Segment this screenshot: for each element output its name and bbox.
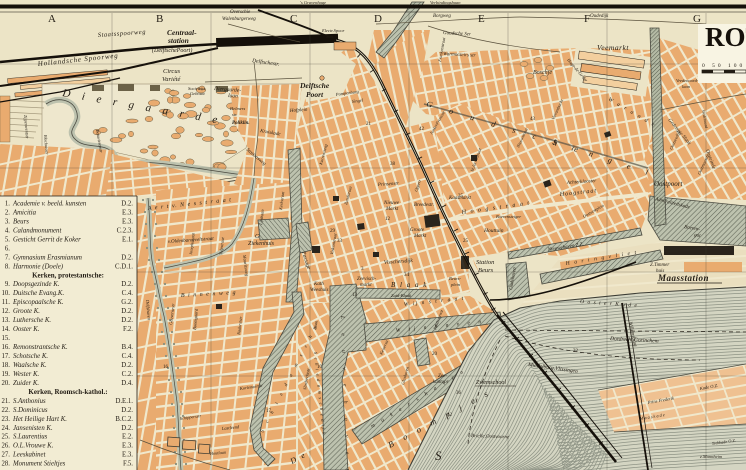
svg-text:E.2.: E.2. [122, 434, 133, 441]
svg-text:Zee-: Zee- [438, 374, 447, 379]
svg-text:0 50 100: 0 50 100 [702, 63, 745, 69]
svg-text:D.2.: D.2. [121, 317, 133, 324]
svg-text:Calandmonument: Calandmonument [13, 227, 62, 234]
svg-text:Borgweg: Borgweg [433, 14, 451, 19]
svg-text:E.1.: E.1. [122, 236, 133, 243]
svg-text:Gebouw: Gebouw [190, 91, 205, 96]
svg-text:29: 29 [330, 229, 336, 234]
svg-text:C.D.1.: C.D.1. [115, 263, 133, 270]
svg-text:kantoor: kantoor [433, 380, 449, 385]
svg-text:Beurs-: Beurs- [449, 276, 461, 281]
svg-text:E.3.: E.3. [122, 452, 133, 459]
svg-text:42: 42 [447, 413, 453, 418]
svg-text:D.2.: D.2. [121, 425, 133, 432]
svg-text:10.: 10. [2, 290, 11, 297]
svg-text:C.2.: C.2. [122, 371, 134, 378]
svg-text:Academie v. beeld. kunsten: Academie v. beeld. kunsten [12, 201, 87, 208]
svg-text:Houttuin: Houttuin [483, 228, 504, 234]
svg-text:B l a a k: B l a a k [391, 281, 428, 289]
svg-text:Circus: Circus [163, 68, 181, 75]
svg-text:Kerken, protestantsche:: Kerken, protestantsche: [32, 271, 104, 279]
svg-text:8.: 8. [5, 263, 10, 270]
svg-text:D.2.: D.2. [121, 201, 133, 208]
svg-text:Jansenisten K.: Jansenisten K. [13, 425, 53, 432]
svg-text:20: 20 [432, 352, 438, 357]
svg-text:18.: 18. [2, 362, 11, 369]
svg-text:Remonstrantsche K.: Remonstrantsche K. [12, 344, 68, 351]
svg-text:E.3.: E.3. [122, 443, 133, 450]
svg-text:17.: 17. [2, 353, 11, 360]
svg-text:Oudedijk: Oudedijk [590, 14, 609, 19]
svg-text:Leeskabinet: Leeskabinet [12, 452, 47, 459]
svg-text:S.Anthonius: S.Anthonius [13, 398, 46, 405]
svg-text:6.: 6. [5, 245, 10, 252]
svg-text:27.: 27. [2, 452, 11, 459]
svg-text:Markt: Markt [385, 207, 399, 212]
svg-text:D.2.: D.2. [121, 308, 133, 315]
svg-text:Helmers: Helmers [229, 106, 245, 111]
svg-text:12: 12 [385, 217, 391, 222]
svg-text:D: D [374, 13, 382, 25]
svg-text:38: 38 [390, 162, 396, 167]
svg-text:Duitsche Evang.K.: Duitsche Evang.K. [12, 290, 64, 297]
svg-text:Z.Timmer: Z.Timmer [650, 263, 669, 268]
svg-text:G: G [693, 13, 701, 25]
svg-text:Vredenoord-: Vredenoord- [676, 78, 699, 83]
svg-text:S.Dominicus: S.Dominicus [13, 407, 48, 414]
svg-text:17: 17 [266, 409, 272, 414]
svg-text:S.Laurentius: S.Laurentius [13, 434, 48, 441]
svg-text:(DelftschePoort): (DelftschePoort) [152, 47, 192, 54]
svg-text:16: 16 [163, 365, 169, 370]
svg-text:Doopsgezinde K.: Doopsgezinde K. [12, 281, 60, 288]
svg-text:12.: 12. [2, 308, 11, 315]
svg-text:Electr.Spoor: Electr.Spoor [321, 28, 345, 33]
svg-text:D.2.: D.2. [121, 407, 133, 414]
svg-text:34: 34 [404, 273, 410, 278]
svg-text:Zuider K.: Zuider K. [13, 380, 39, 387]
svg-text:5.: 5. [5, 236, 10, 243]
svg-text:G.2.: G.2. [121, 299, 133, 306]
svg-text:Maasstation: Maasstation [657, 273, 709, 283]
svg-text:20.: 20. [2, 380, 11, 387]
svg-text:Zwemschool: Zwemschool [476, 380, 506, 386]
svg-text:23.: 23. [2, 416, 11, 423]
svg-text:C.2.3.: C.2.3. [117, 227, 134, 234]
svg-text:A: A [48, 13, 56, 25]
svg-text:Breedestr.: Breedestr. [414, 203, 434, 208]
svg-text:Oostpoort: Oostpoort [654, 180, 683, 188]
svg-text:14.: 14. [2, 326, 11, 333]
svg-text:E: E [478, 13, 485, 25]
svg-text:Weeshuis: Weeshuis [310, 288, 328, 293]
svg-text:D.4.: D.4. [121, 380, 133, 387]
svg-text:ROT: ROT [705, 22, 746, 52]
svg-text:Poort: Poort [306, 90, 324, 99]
svg-text:36: 36 [456, 391, 462, 396]
svg-text:Beurs: Beurs [13, 218, 29, 225]
svg-text:42: 42 [419, 127, 425, 132]
svg-text:Boschje: Boschje [533, 70, 552, 76]
svg-text:C.4.: C.4. [122, 290, 134, 297]
svg-text:26.: 26. [2, 443, 11, 450]
svg-text:D.2.: D.2. [121, 281, 133, 288]
svg-text:Groote K.: Groote K. [13, 308, 40, 315]
svg-text:E.3.: E.3. [122, 218, 133, 225]
svg-text:F.2.: F.2. [123, 326, 133, 333]
svg-text:16.: 16. [2, 344, 11, 351]
svg-text:Episcopaalsche K.: Episcopaalsche K. [12, 299, 64, 306]
svg-text:station: station [167, 36, 189, 45]
svg-text:Overschie: Overschie [230, 10, 251, 15]
svg-text:markt: markt [360, 283, 372, 288]
svg-text:Veemarkt: Veemarkt [597, 43, 629, 52]
svg-text:33: 33 [337, 239, 343, 244]
svg-text:Stat.: Stat. [326, 34, 334, 39]
svg-text:D.E.1.: D.E.1. [115, 398, 133, 405]
svg-text:Waalsche K.: Waalsche K. [13, 362, 47, 369]
svg-text:Variété: Variété [162, 76, 182, 83]
svg-text:Amicitia: Amicitia [12, 210, 37, 217]
svg-text:21: 21 [366, 122, 372, 127]
svg-text:24.: 24. [2, 425, 11, 432]
svg-text:Kath: Kath [313, 282, 324, 287]
svg-text:laan: laan [682, 84, 691, 89]
svg-text:Luthersche K.: Luthersche K. [12, 317, 51, 324]
svg-text:Boerensteiger: Boerensteiger [496, 214, 521, 219]
svg-text:1.: 1. [5, 201, 10, 208]
svg-text:laan: laan [228, 93, 238, 100]
svg-text:13: 13 [352, 293, 358, 298]
svg-text:15.: 15. [2, 335, 11, 342]
svg-text:E.3.: E.3. [122, 210, 133, 217]
svg-text:13.: 13. [2, 317, 11, 324]
svg-text:Markt: Markt [413, 234, 427, 239]
svg-text:Monument Stieltjes: Monument Stieltjes [12, 461, 66, 468]
svg-text:7.: 7. [5, 254, 10, 261]
svg-text:Ziekenhuis: Ziekenhuis [248, 241, 275, 247]
svg-text:Schotsche K.: Schotsche K. [13, 353, 48, 360]
svg-text:O.L.Vrouwe K.: O.L.Vrouwe K. [13, 443, 54, 450]
svg-text:plein: plein [450, 282, 461, 287]
svg-text:C: C [290, 13, 297, 25]
svg-text:Het Heilige Hart K.: Het Heilige Hart K. [12, 416, 67, 423]
svg-text:43: 43 [530, 117, 536, 122]
svg-text:Nieuwe: Nieuwe [383, 201, 400, 206]
svg-text:B: B [156, 13, 163, 25]
svg-text:B.C.2.: B.C.2. [115, 416, 133, 423]
svg-text:35: 35 [458, 194, 464, 199]
svg-text:3.: 3. [5, 218, 10, 225]
svg-text:D.2.: D.2. [121, 254, 133, 261]
svg-text:Zeevisch-: Zeevisch- [357, 277, 376, 282]
svg-text:'s Gravenhage: 's Gravenhage [300, 0, 326, 5]
svg-text:25: 25 [463, 239, 469, 244]
svg-text:Gymnasium Erasmianum: Gymnasium Erasmianum [13, 254, 82, 261]
svg-text:str.: str. [232, 112, 237, 117]
svg-text:Harmonie (Doele): Harmonie (Doele) [12, 263, 64, 270]
svg-text:Zuid-Blaak: Zuid-Blaak [391, 293, 412, 298]
svg-text:28.: 28. [2, 461, 11, 468]
svg-text:10: 10 [317, 365, 323, 370]
svg-text:F.5.: F.5. [123, 461, 133, 468]
svg-text:21.: 21. [2, 398, 11, 405]
svg-text:2.: 2. [5, 210, 10, 217]
svg-text:z.Mannheim: z.Mannheim [699, 454, 723, 459]
svg-text:19.: 19. [2, 371, 11, 378]
svg-text:Groote: Groote [410, 228, 425, 233]
svg-text:4.: 4. [5, 227, 10, 234]
svg-text:Delftsche: Delftsche [299, 81, 330, 90]
svg-text:Poliklin.: Poliklin. [232, 121, 250, 126]
svg-text:32: 32 [573, 349, 579, 354]
svg-text:Ooster K.: Ooster K. [13, 326, 40, 333]
svg-text:Wester K.: Wester K. [13, 371, 39, 378]
svg-text:Walenburgerweg: Walenburgerweg [222, 17, 256, 22]
svg-text:Verbindingsbaan: Verbindingsbaan [430, 0, 461, 5]
svg-text:9.: 9. [5, 281, 10, 288]
svg-text:S: S [435, 448, 442, 463]
svg-text:Station: Station [476, 259, 494, 266]
svg-text:Kerken, Roomsch-kathol.:: Kerken, Roomsch-kathol.: [28, 388, 107, 396]
svg-text:D.2.: D.2. [121, 362, 133, 369]
svg-text:Beurs: Beurs [478, 267, 494, 274]
svg-text:11.: 11. [2, 299, 11, 306]
svg-text:Gesticht Gerrit de Koker: Gesticht Gerrit de Koker [13, 236, 81, 243]
svg-text:C.4.: C.4. [122, 353, 134, 360]
svg-text:25.: 25. [2, 434, 11, 441]
svg-text:B.4.: B.4. [122, 344, 134, 351]
svg-text:22.: 22. [2, 407, 11, 414]
